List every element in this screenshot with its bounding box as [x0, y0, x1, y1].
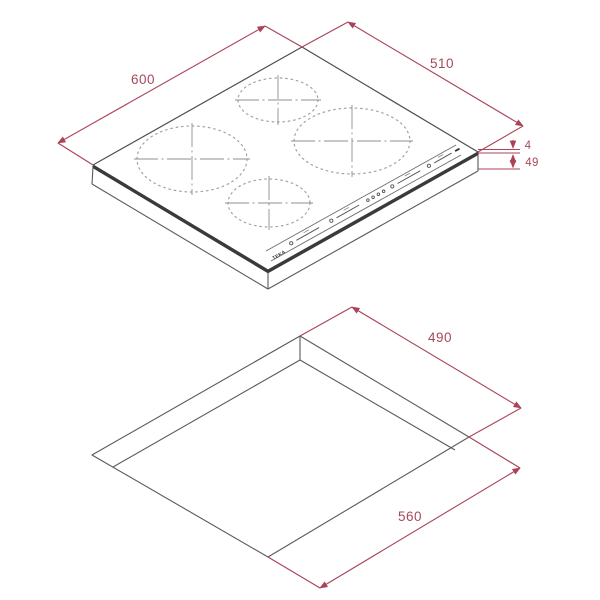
witness-line [58, 143, 93, 165]
dimension-label-560: 560 [398, 509, 422, 524]
dimension-line [352, 307, 521, 408]
dimension-label-49: 49 [525, 157, 538, 169]
dimension-line [320, 468, 520, 588]
dimension-label-490: 490 [428, 330, 452, 345]
dimension-490: 490 [300, 307, 521, 437]
hob-left-corner-edge [92, 167, 93, 184]
dimension-label-4: 4 [525, 140, 532, 152]
dimension-drawing-page: TEKA 600 510 4 49 [0, 0, 600, 600]
cutout-figure: 490 560 [92, 307, 521, 588]
cutout-wall-bottom-right [300, 360, 455, 450]
dimension-heights: 4 49 [478, 140, 539, 169]
diagram-canvas: TEKA 600 510 4 49 [0, 0, 600, 600]
witness-line [478, 126, 523, 152]
dimension-560: 560 [268, 437, 520, 588]
witness-line [268, 557, 320, 588]
witness-line [469, 408, 521, 437]
witness-line [302, 22, 348, 47]
dimension-label-510: 510 [430, 56, 454, 71]
witness-line [265, 26, 302, 47]
witness-line [469, 437, 520, 468]
hob-figure: TEKA 600 510 4 49 [58, 22, 539, 289]
dimension-label-600: 600 [131, 72, 155, 87]
cutout-wall-bottom-left [113, 360, 300, 467]
witness-line [300, 307, 352, 336]
